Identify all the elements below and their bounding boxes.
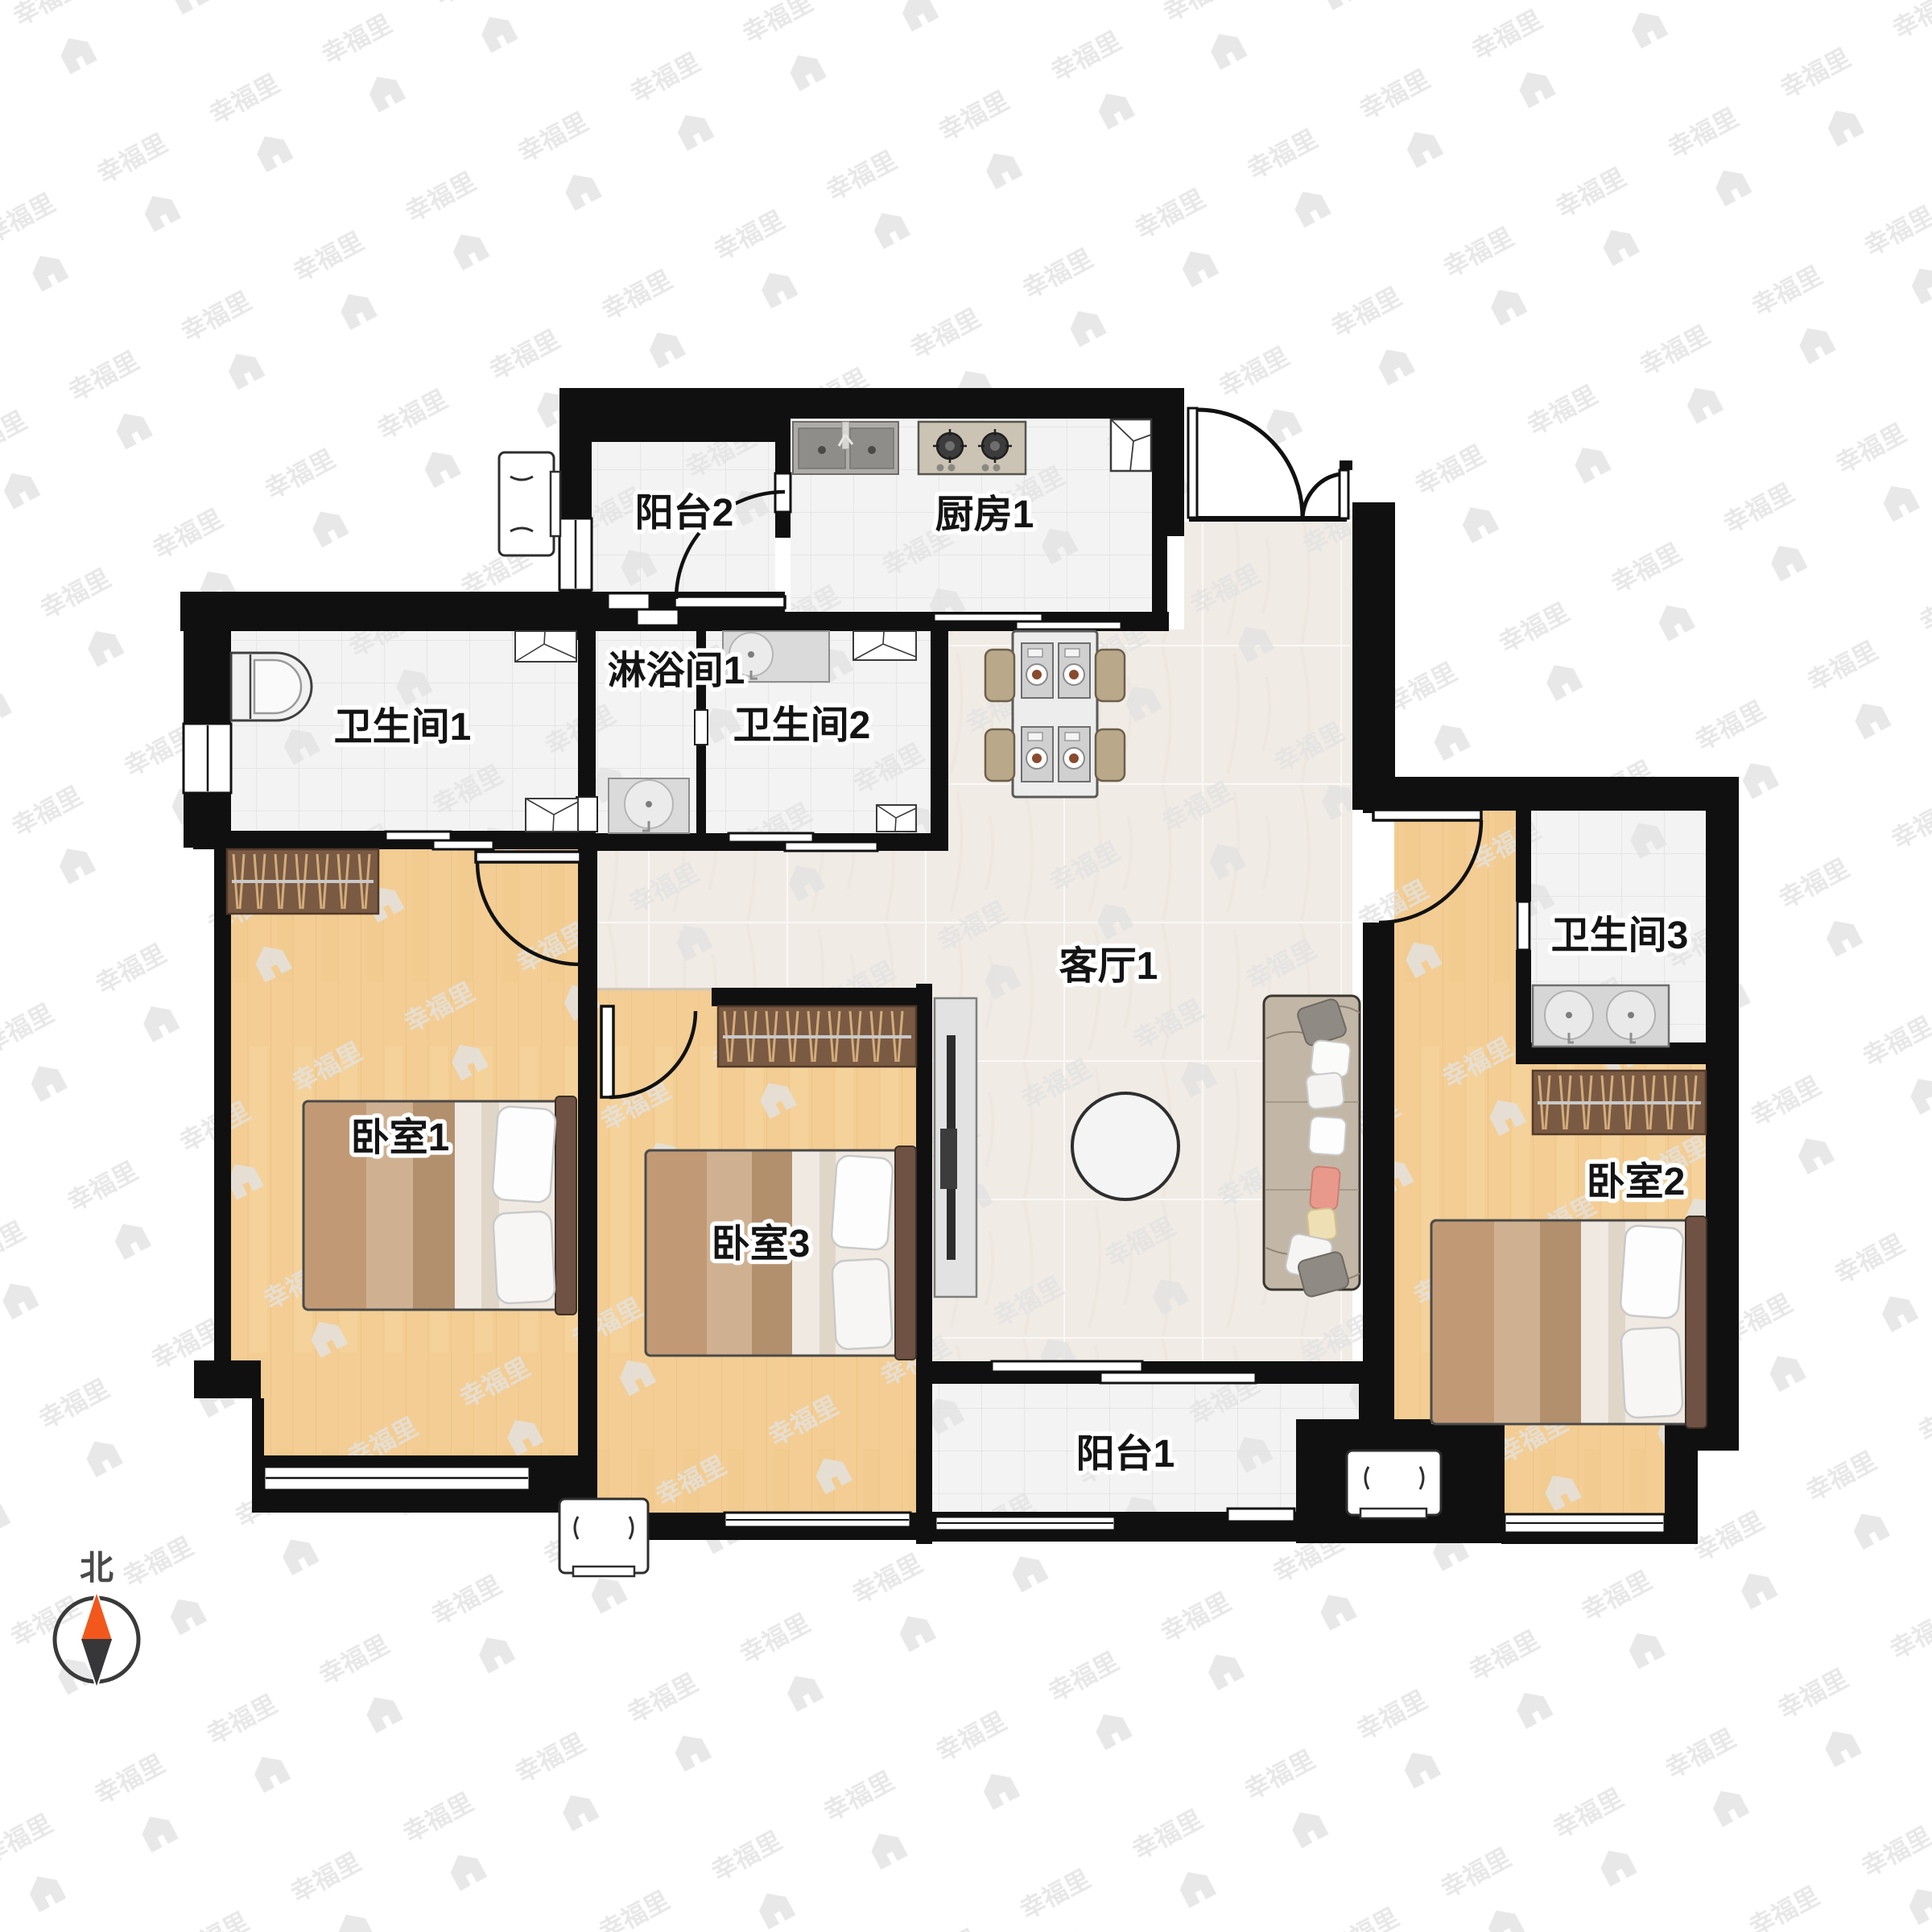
svg-text:阳台1: 阳台1 xyxy=(1076,1433,1175,1476)
svg-text:厨房1: 厨房1 xyxy=(935,493,1034,536)
svg-text:卧室2: 卧室2 xyxy=(1587,1161,1686,1203)
svg-text:卧室1: 卧室1 xyxy=(351,1117,450,1159)
svg-text:淋浴间1: 淋浴间1 xyxy=(608,650,745,692)
svg-text:北: 北 xyxy=(80,1549,114,1587)
svg-text:卫生间1: 卫生间1 xyxy=(334,706,472,749)
svg-text:卧室3: 卧室3 xyxy=(712,1223,811,1265)
svg-text:客厅1: 客厅1 xyxy=(1059,945,1158,988)
svg-text:卫生间2: 卫生间2 xyxy=(733,704,871,747)
svg-text:阳台2: 阳台2 xyxy=(635,492,734,535)
svg-text:卫生间3: 卫生间3 xyxy=(1551,914,1689,957)
